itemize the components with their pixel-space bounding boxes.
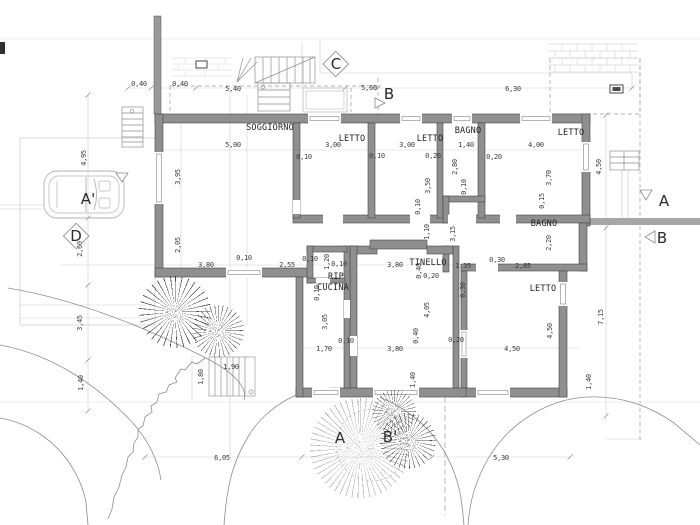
brick-hatch-right bbox=[548, 44, 638, 72]
floor-plan-drawing bbox=[0, 0, 700, 525]
vent-symbol bbox=[196, 61, 207, 68]
plant-dashed-ring bbox=[336, 409, 408, 481]
dashed-lines bbox=[170, 58, 640, 515]
door-openings bbox=[293, 200, 516, 356]
stair-bottom bbox=[209, 357, 255, 396]
section-arrow-b-right bbox=[645, 231, 655, 243]
edge-mark bbox=[0, 42, 5, 54]
section-arrow-b-top bbox=[375, 98, 385, 108]
section-arrow-a-right bbox=[640, 190, 652, 200]
tree-canopy-right bbox=[468, 397, 700, 525]
floor-plan-sheet: 0,400,405,405,606,304,952,603,451,404,50… bbox=[0, 0, 700, 525]
stair-top bbox=[237, 57, 347, 112]
stair-right bbox=[610, 151, 639, 218]
tree-canopy-left bbox=[0, 418, 88, 525]
section-line-band bbox=[588, 218, 700, 225]
carport-outline bbox=[20, 138, 155, 325]
boundary-wall bbox=[154, 16, 161, 114]
walls bbox=[155, 114, 590, 397]
tree-canopy-center bbox=[224, 388, 464, 525]
car-icon bbox=[44, 171, 124, 218]
rocky-path bbox=[108, 358, 205, 519]
stair-left bbox=[122, 107, 143, 147]
